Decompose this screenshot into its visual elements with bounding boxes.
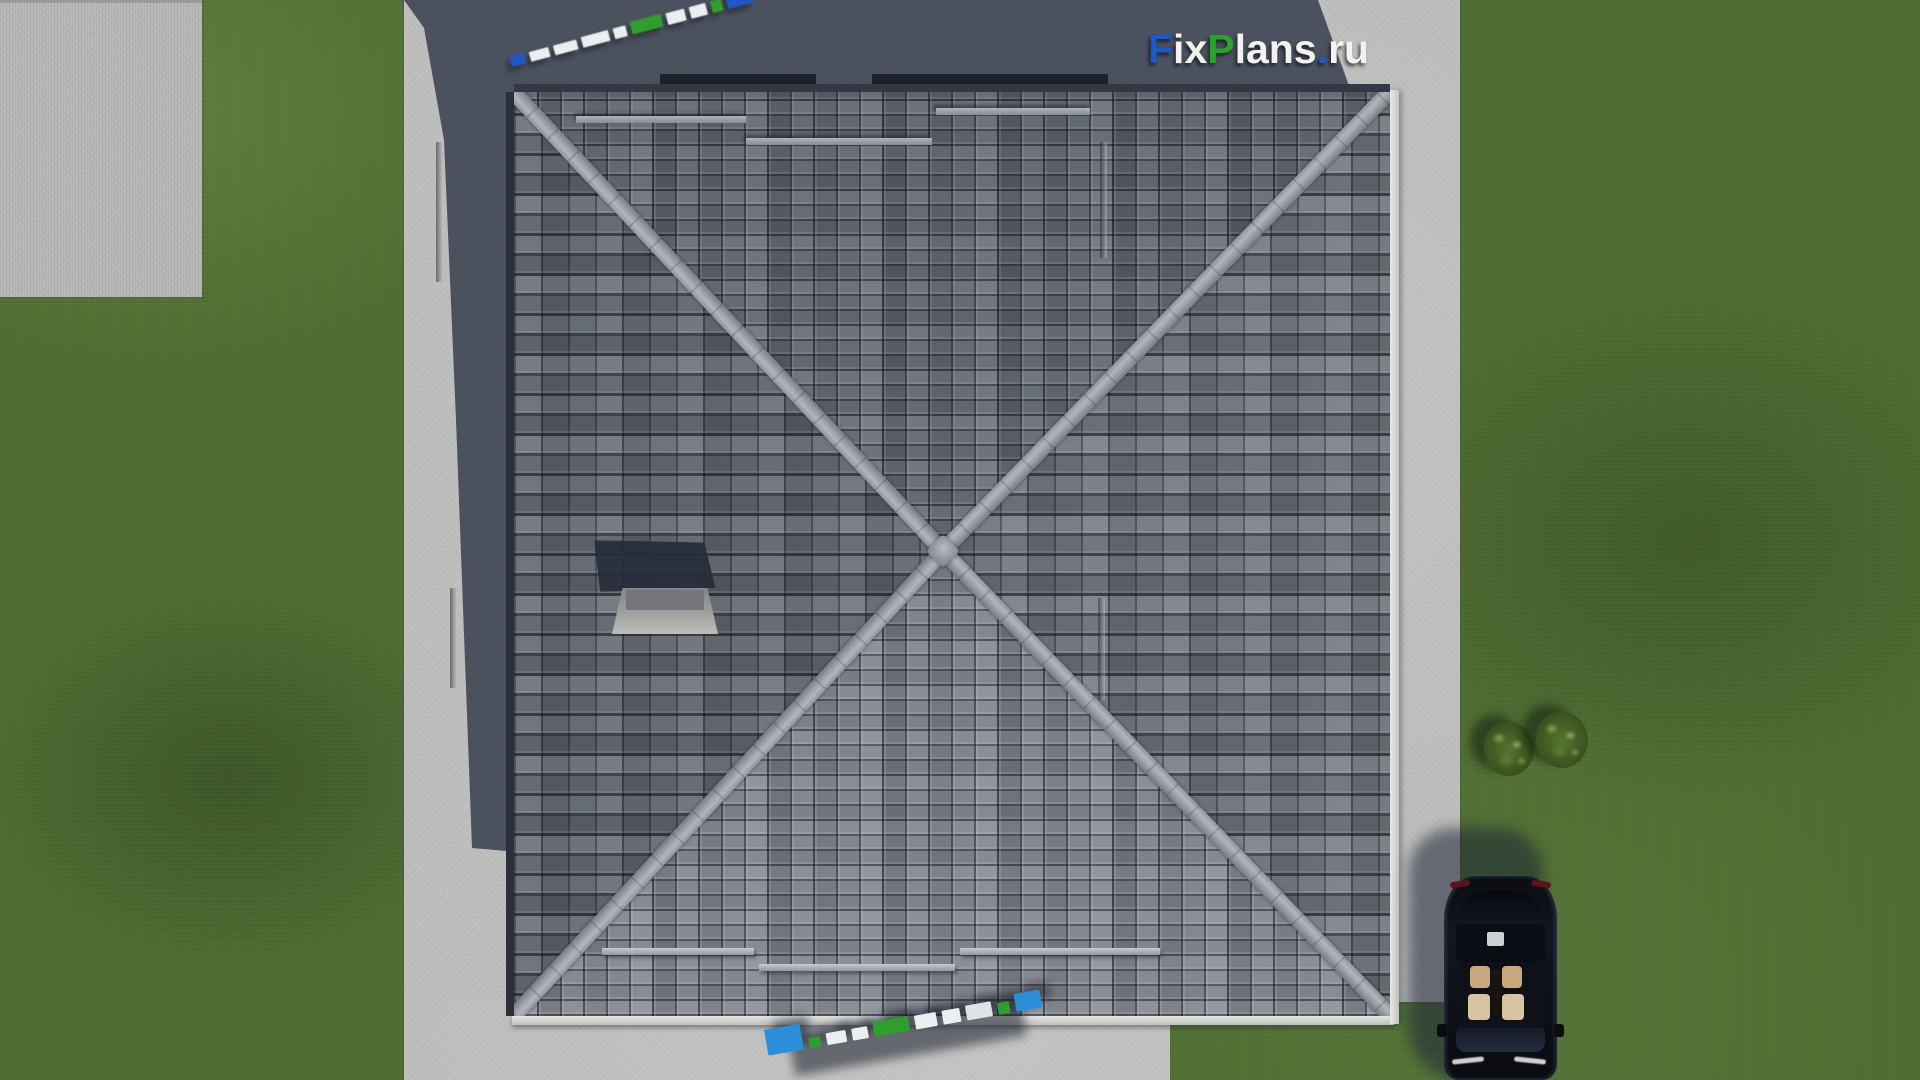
side-mirror-right <box>1554 1024 1564 1037</box>
car-seat <box>1502 966 1522 988</box>
car-cabin-glass <box>1458 962 1543 1030</box>
side-mirror-left <box>1437 1024 1447 1037</box>
logo-letter: . <box>1317 26 1328 72</box>
left-eave-shadow-line <box>506 92 514 1016</box>
logo-letter: ru <box>1328 26 1369 72</box>
snow-guard-bar <box>602 948 754 955</box>
logo-letter: F <box>1148 26 1173 72</box>
bush <box>1484 722 1534 776</box>
hip-roof <box>514 92 1390 1016</box>
logo-letter: ix <box>1173 26 1207 72</box>
snow-guard-bar <box>936 108 1090 115</box>
chimney-shadow <box>594 540 718 592</box>
logo-letter: lans <box>1235 26 1317 72</box>
car-seat <box>1502 994 1524 1020</box>
watermark-block <box>997 1001 1011 1015</box>
chimney-top-face <box>626 590 704 610</box>
roof-vent-strip <box>1100 142 1107 258</box>
snow-guard-bar <box>759 964 955 971</box>
car-seat <box>1470 966 1490 988</box>
gutter-downpipe-line <box>450 588 456 688</box>
snow-guard-bar <box>960 948 1160 955</box>
fixplans-logo: FixPlans.ru <box>1148 26 1369 73</box>
gutter-downpipe-line <box>436 142 442 282</box>
parked-car <box>1444 876 1557 1080</box>
car-sunroof <box>1487 932 1504 946</box>
top-eave-shadow-line <box>514 84 1390 92</box>
snow-guard-bar <box>576 116 746 123</box>
snow-guard-bar <box>746 138 932 145</box>
aerial-house-render: FixPlans.ru <box>0 0 1920 1080</box>
logo-letter: P <box>1207 26 1234 72</box>
car-center-console <box>1491 970 1501 1016</box>
car-windshield <box>1456 1028 1545 1052</box>
watermark-block <box>808 1036 822 1048</box>
roof-vent-strip <box>1098 598 1105 700</box>
driveway <box>0 0 202 297</box>
car-seat <box>1468 994 1490 1020</box>
bush <box>1536 712 1588 768</box>
gutter-right <box>1390 90 1399 1024</box>
